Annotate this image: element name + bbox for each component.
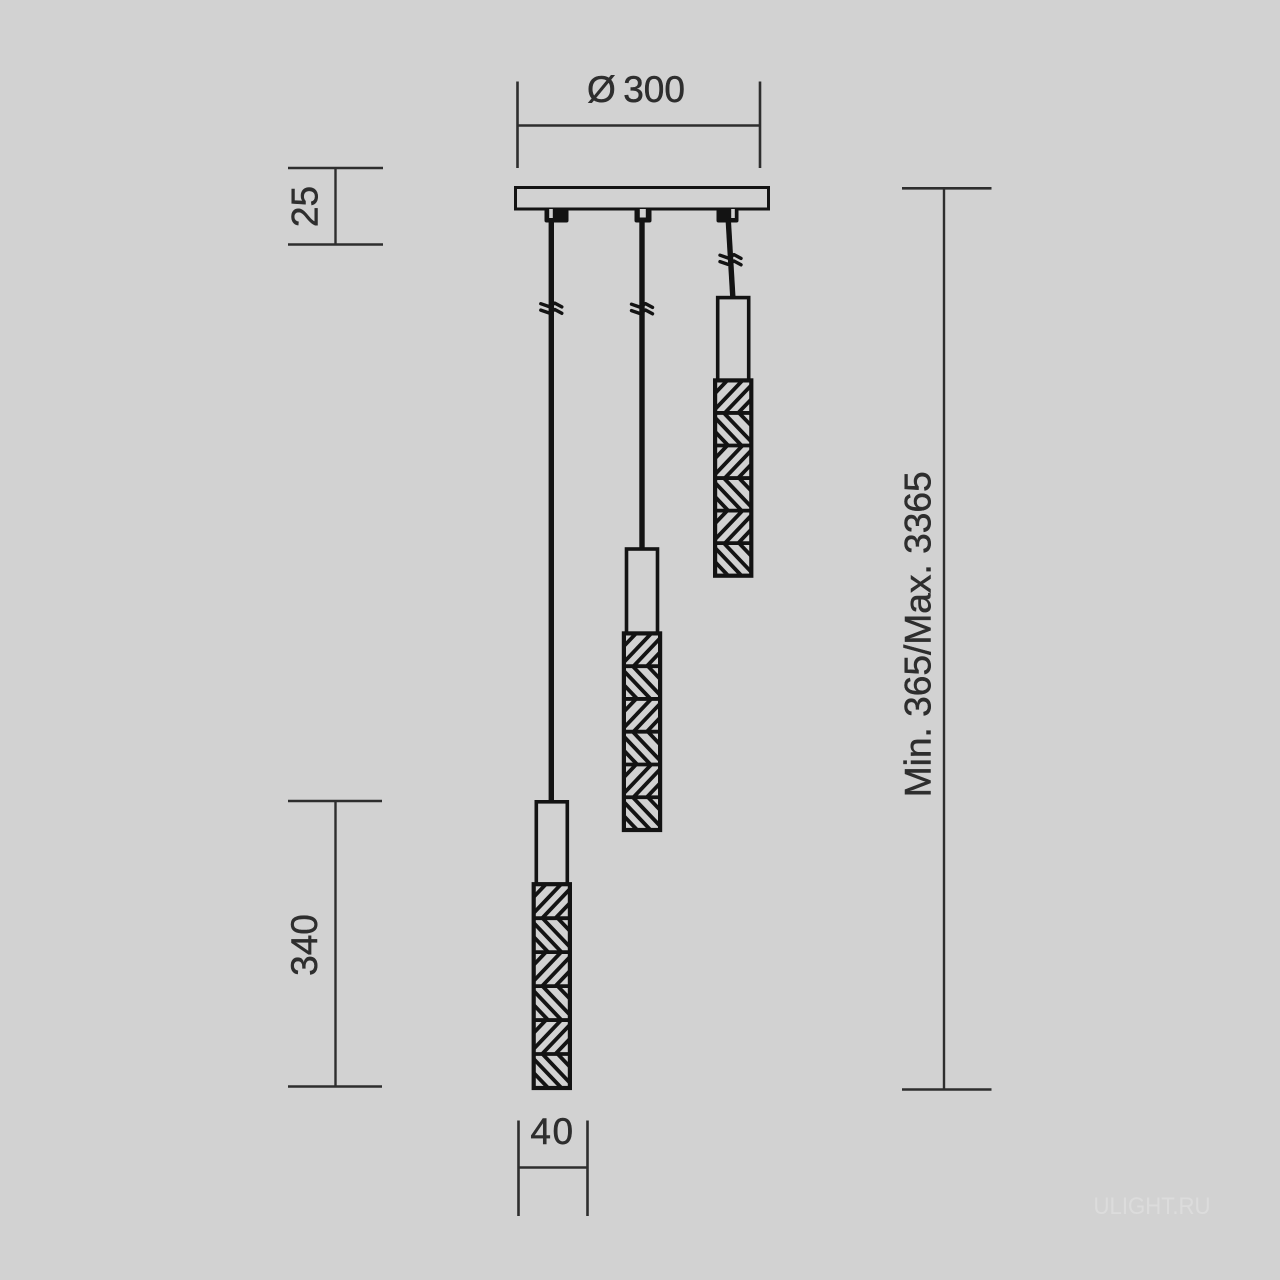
svg-text:340: 340 (284, 914, 325, 976)
svg-text:40: 40 (530, 1111, 574, 1152)
svg-text:ULIGHT.RU: ULIGHT.RU (1094, 1193, 1211, 1220)
svg-text:Ø 300: Ø 300 (587, 69, 685, 110)
svg-text:Min. 365/Max. 3365: Min. 365/Max. 3365 (898, 471, 939, 797)
svg-text:25: 25 (285, 186, 326, 227)
